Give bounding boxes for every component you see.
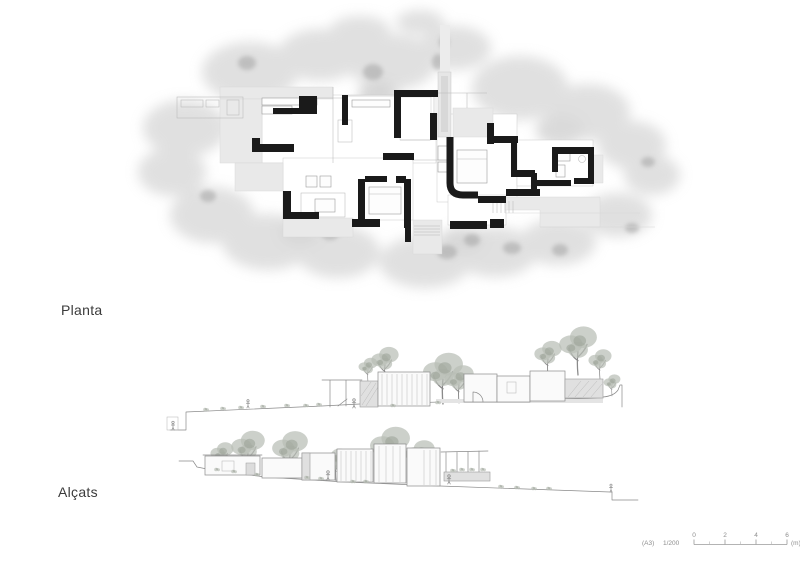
elevation-upper xyxy=(167,326,622,430)
elevations-label: Alçats xyxy=(58,484,98,500)
ruler-tick-label: 6 xyxy=(785,532,789,539)
scale-ruler xyxy=(640,528,800,554)
ruler-tick-label: 4 xyxy=(754,532,758,539)
plan-label: Planta xyxy=(61,302,103,318)
ruler-tick-label: 2 xyxy=(723,532,727,539)
sheet: Planta Alçats (A3) 1/200 0 2 4 6 (m) xyxy=(0,0,800,565)
ruler-unit-label: (m) xyxy=(791,540,800,547)
drawing-canvas xyxy=(0,0,800,565)
elevation-lower xyxy=(179,427,638,500)
ruler-tick-label: 0 xyxy=(692,532,696,539)
scale-bar: (A3) 1/200 0 2 4 6 (m) xyxy=(640,528,800,554)
